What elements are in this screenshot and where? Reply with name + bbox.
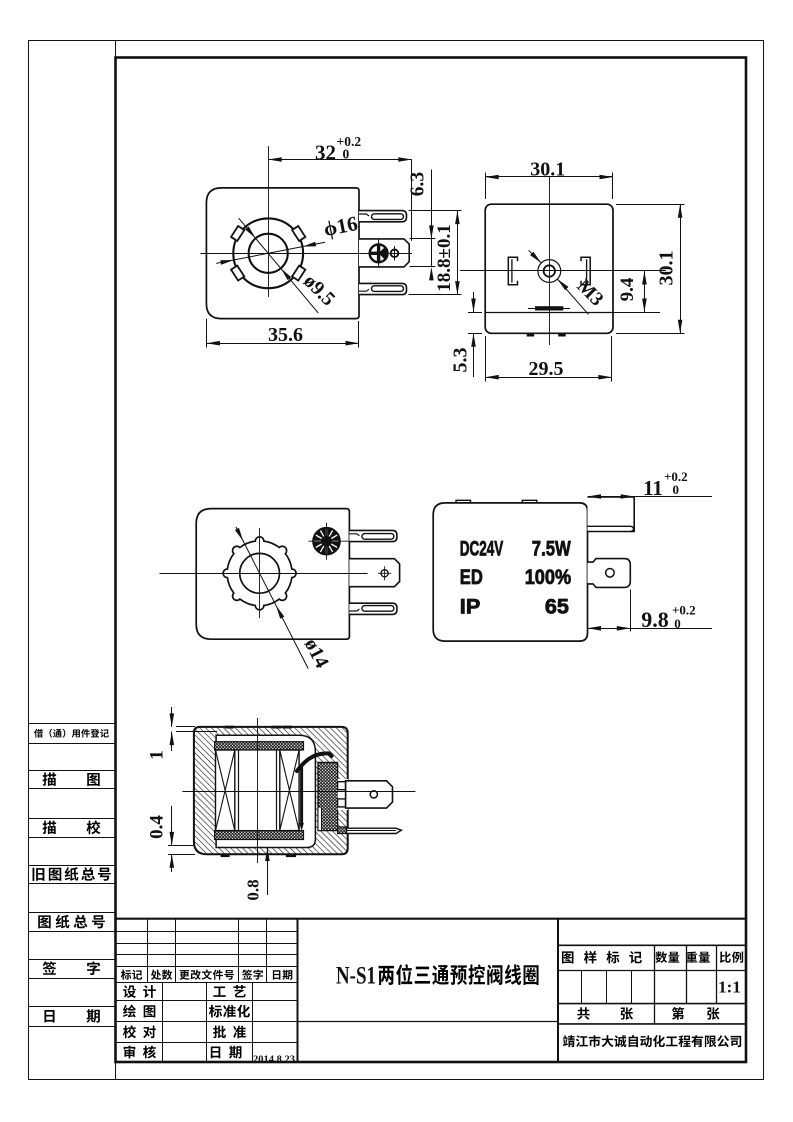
svg-text:0.4: 0.4 [147,815,168,839]
svg-text:29.5: 29.5 [529,358,564,380]
svg-text:IP: IP [460,594,481,618]
svg-text:1: 1 [147,750,168,760]
svg-text:DC24V: DC24V [460,536,504,560]
svg-text:N-S1: N-S1 [336,963,376,990]
svg-text:9.8: 9.8 [641,607,669,632]
svg-text:30.1: 30.1 [656,251,678,286]
svg-text:0: 0 [674,616,681,631]
svg-text:100%: 100% [525,565,572,589]
svg-text:0.8: 0.8 [244,879,263,900]
svg-text:11: 11 [643,476,663,500]
svg-text:9.4: 9.4 [617,277,638,301]
svg-text:6.3: 6.3 [407,172,428,197]
svg-text:35.6: 35.6 [268,324,303,346]
svg-text:ED: ED [460,565,483,589]
svg-text:7.5W: 7.5W [532,536,572,560]
svg-text:30.1: 30.1 [530,159,565,181]
svg-text:2014.8.23: 2014.8.23 [253,1054,295,1065]
svg-text:5.3: 5.3 [450,348,472,373]
svg-text:0: 0 [673,482,680,497]
svg-text:0: 0 [343,146,350,161]
svg-text:18.8±0.1: 18.8±0.1 [434,224,455,291]
svg-text:1:1: 1:1 [718,978,741,997]
svg-text:65: 65 [545,594,569,618]
svg-text:32: 32 [315,140,336,164]
